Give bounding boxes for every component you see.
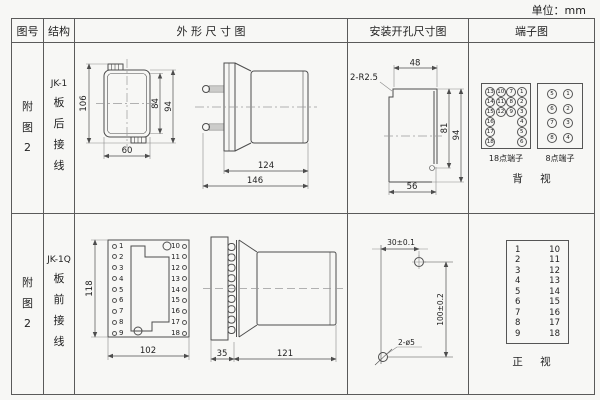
mounting-holes-jk1q: 30±0.1 100±0.2 2-ø5 bbox=[348, 214, 469, 394]
terminal-circle: 11 bbox=[496, 97, 506, 107]
terminal-block-8: 51627384 bbox=[537, 83, 583, 149]
header-structure: 结构 bbox=[44, 19, 75, 43]
terminal-circle: 3 bbox=[517, 107, 527, 117]
terminal-circle: 7 bbox=[506, 87, 516, 97]
terminal-circle: 6 bbox=[547, 104, 557, 114]
header-figure-no: 图号 bbox=[12, 19, 44, 43]
jk1-front-view: 106 60 84 94 bbox=[79, 59, 176, 159]
terminal-number-left: 4 bbox=[515, 277, 520, 286]
terminal-circle: 7 bbox=[547, 118, 557, 128]
terminal-circle: 13 bbox=[485, 87, 495, 97]
jk1-outline-svg: 106 60 84 94 bbox=[75, 43, 348, 214]
terminal-circle: 6 bbox=[517, 137, 527, 147]
terminal-circle: 8 bbox=[547, 133, 557, 143]
terminal-number-left: 1 bbox=[515, 246, 520, 255]
front-terminal: 16 bbox=[166, 307, 187, 315]
dim-label-102: 102 bbox=[140, 346, 156, 356]
terminal-pair-row: 4 13 bbox=[515, 277, 560, 286]
terminal-number-right: 10 bbox=[549, 246, 560, 255]
terminal-circle: 10 bbox=[496, 87, 506, 97]
front-terminal: 9 bbox=[112, 329, 129, 337]
terminal-number-right: 11 bbox=[549, 256, 560, 265]
terminal-ring-icon bbox=[112, 244, 117, 249]
terminal-pair-row: 8 17 bbox=[515, 319, 560, 328]
terminal-circle: 4 bbox=[563, 133, 573, 143]
terminal-pair-row: 9 18 bbox=[515, 330, 560, 339]
figure-no-jk1: 附图2 bbox=[12, 43, 44, 214]
terminal-ring-icon bbox=[182, 287, 187, 292]
outline-drawing-jk1q: 118 102 bbox=[75, 214, 348, 394]
terminal-number-right: 12 bbox=[549, 267, 560, 276]
front-terminal: 6 bbox=[112, 296, 129, 304]
terminal-number-right: 18 bbox=[549, 330, 560, 339]
dim-label-124: 124 bbox=[258, 161, 274, 171]
terminal-ring-icon bbox=[182, 309, 187, 314]
terminal-ring-icon bbox=[182, 331, 187, 336]
terminal-number-right: 15 bbox=[549, 298, 560, 307]
dim-label-35: 35 bbox=[217, 349, 228, 359]
terminal-circle: 8 bbox=[506, 97, 516, 107]
terminal-number-right: 17 bbox=[549, 319, 560, 328]
front-terminal: 4 bbox=[112, 275, 129, 283]
drawing-table: 图号 结构 外 形 尺 寸 图 安装开孔尺寸图 端子图 附图2 JK-1 板后接… bbox=[11, 18, 595, 395]
jk1-cutout-shape: 2-R2.5 48 81 94 56 bbox=[350, 59, 464, 196]
terminal-number-left: 2 bbox=[515, 256, 520, 265]
terminal-circle: 5 bbox=[517, 127, 527, 137]
terminal-ring-icon bbox=[112, 320, 117, 325]
terminal-ring-icon bbox=[112, 287, 117, 292]
terminal-number-left: 7 bbox=[515, 309, 520, 318]
jk1q-side-view: 35 121 bbox=[203, 237, 343, 362]
terminal-pair-row: 6 15 bbox=[515, 298, 560, 307]
dim-label-48: 48 bbox=[410, 59, 421, 69]
rear-view-label: 背 视 bbox=[469, 171, 594, 186]
terminal-pair-row: 2 11 bbox=[515, 256, 560, 265]
front-terminals-right: 101112131415161718 bbox=[166, 242, 187, 337]
terminal-ring-icon bbox=[112, 309, 117, 314]
terminal-pair-row: 7 16 bbox=[515, 309, 560, 318]
dim-label-84: 84 bbox=[151, 98, 161, 109]
front-terminal: 13 bbox=[166, 275, 187, 283]
dim-label-56: 56 bbox=[407, 182, 418, 192]
terminal-circle: 2 bbox=[563, 104, 573, 114]
dim-label-146: 146 bbox=[247, 176, 263, 186]
terminal-circle: 1 bbox=[517, 87, 527, 97]
front-terminal: 12 bbox=[166, 264, 187, 272]
dim-label-106: 106 bbox=[79, 95, 89, 111]
terminal-number-left: 8 bbox=[515, 319, 520, 328]
front-terminal: 7 bbox=[112, 307, 129, 315]
terminal-circle: 14 bbox=[485, 97, 495, 107]
terminal-number-right: 14 bbox=[549, 288, 560, 297]
callout-2-r2.5: 2-R2.5 bbox=[350, 73, 378, 83]
front-terminal: 5 bbox=[112, 286, 129, 294]
dim-label-94: 94 bbox=[164, 101, 174, 112]
structure-jk1: JK-1 板后接线 bbox=[44, 43, 75, 214]
terminal-ring-icon bbox=[112, 276, 117, 281]
terminal-diagram-jk1q: 1 10 2 11 3 12 4 13 bbox=[469, 214, 594, 394]
front-terminal: 8 bbox=[112, 318, 129, 326]
terminal-circle: 17 bbox=[485, 127, 495, 137]
dim-label-60: 60 bbox=[122, 146, 133, 156]
figure-no-text: 附图2 bbox=[22, 97, 33, 160]
header-terminal-diagram: 端子图 bbox=[469, 19, 594, 43]
header-mounting-holes: 安装开孔尺寸图 bbox=[348, 19, 469, 43]
header-outline-drawing: 外 形 尺 寸 图 bbox=[75, 19, 348, 43]
terminal-ring-icon bbox=[182, 254, 187, 259]
terminal-circle: 4 bbox=[517, 117, 527, 127]
front-view-label: 正 视 bbox=[469, 354, 594, 369]
terminal-circle: 2 bbox=[517, 97, 527, 107]
front-terminal: 17 bbox=[166, 318, 187, 326]
terminal-number-right: 13 bbox=[549, 277, 560, 286]
terminal-ring-icon bbox=[182, 276, 187, 281]
terminal-pair-row: 5 14 bbox=[515, 288, 560, 297]
front-terminal: 14 bbox=[166, 286, 187, 294]
terminal-circle: 18 bbox=[485, 137, 495, 147]
wiring-label: 板后接线 bbox=[54, 93, 65, 177]
front-terminal: 10 bbox=[166, 242, 187, 250]
terminal-circle: 5 bbox=[547, 89, 557, 99]
relay-dimension-drawing-page: 单位：mm 图号 结构 外 形 尺 寸 图 安装开孔尺寸图 端子图 附图2 JK… bbox=[0, 0, 600, 400]
unit-note: 单位：mm bbox=[532, 2, 586, 18]
outline-drawing-jk1: 106 60 84 94 bbox=[75, 43, 348, 214]
terminal-ring-icon bbox=[112, 298, 117, 303]
jk1-side-view: 124 146 bbox=[195, 63, 317, 189]
front-terminal: 15 bbox=[166, 296, 187, 304]
dim-label-118: 118 bbox=[85, 280, 95, 296]
structure-jk1q: JK-1Q 板前接线 bbox=[44, 214, 75, 394]
terminal-table: 1 10 2 11 3 12 4 13 bbox=[506, 240, 569, 344]
terminal-ring-icon bbox=[182, 298, 187, 303]
label-18-point: 18点端子 bbox=[481, 153, 531, 164]
front-terminal: 1 bbox=[112, 242, 129, 250]
terminal-circle: 12 bbox=[496, 107, 506, 117]
terminal-diagram-jk1: 131071141182151293164175186 51627384 18点… bbox=[469, 43, 594, 214]
terminal-number-left: 5 bbox=[515, 288, 520, 297]
jk1q-mounting-svg: 30±0.1 100±0.2 2-ø5 bbox=[348, 214, 469, 394]
jk1q-hole-layout: 30±0.1 100±0.2 2-ø5 bbox=[372, 238, 453, 365]
front-terminal: 3 bbox=[112, 264, 129, 272]
terminal-circle: 9 bbox=[506, 107, 516, 117]
terminal-number-left: 9 bbox=[515, 330, 520, 339]
terminal-pair-row: 3 12 bbox=[515, 267, 560, 276]
dim-label-94-hole: 94 bbox=[452, 130, 462, 141]
label-8-point: 8点端子 bbox=[537, 153, 583, 164]
terminal-circle: 16 bbox=[485, 117, 495, 127]
terminal-number-left: 6 bbox=[515, 298, 520, 307]
terminal-block-18: 131071141182151293164175186 bbox=[481, 83, 531, 149]
dim-label-30: 30±0.1 bbox=[387, 238, 415, 247]
front-terminal: 18 bbox=[166, 329, 187, 337]
dim-label-81: 81 bbox=[440, 123, 450, 134]
model-label: JK-1Q bbox=[47, 255, 71, 265]
terminal-ring-icon bbox=[112, 265, 117, 270]
terminal-circle: 1 bbox=[563, 89, 573, 99]
terminal-ring-icon bbox=[112, 331, 117, 336]
dim-label-100: 100±0.2 bbox=[436, 293, 445, 326]
terminal-ring-icon bbox=[182, 265, 187, 270]
jk1-mounting-svg: 2-R2.5 48 81 94 56 bbox=[348, 43, 469, 214]
figure-no-text: 附图2 bbox=[22, 273, 33, 336]
terminal-number-right: 16 bbox=[549, 309, 560, 318]
terminal-ring-icon bbox=[182, 320, 187, 325]
dim-label-121: 121 bbox=[277, 349, 293, 359]
terminal-number-left: 3 bbox=[515, 267, 520, 276]
wiring-label: 板前接线 bbox=[54, 269, 65, 353]
terminal-circle: 15 bbox=[485, 107, 495, 117]
figure-no-jk1q: 附图2 bbox=[12, 214, 44, 394]
mounting-holes-jk1: 2-R2.5 48 81 94 56 bbox=[348, 43, 469, 214]
terminal-circle: 3 bbox=[563, 118, 573, 128]
model-label: JK-1 bbox=[51, 79, 68, 89]
terminal-pair-row: 1 10 bbox=[515, 246, 560, 255]
callout-2-dia5: 2-ø5 bbox=[398, 338, 415, 347]
terminal-ring-icon bbox=[182, 244, 187, 249]
terminal-ring-icon bbox=[112, 254, 117, 259]
front-terminal: 2 bbox=[112, 253, 129, 261]
front-terminals-left: 123456789 bbox=[112, 242, 129, 337]
front-terminal: 11 bbox=[166, 253, 187, 261]
